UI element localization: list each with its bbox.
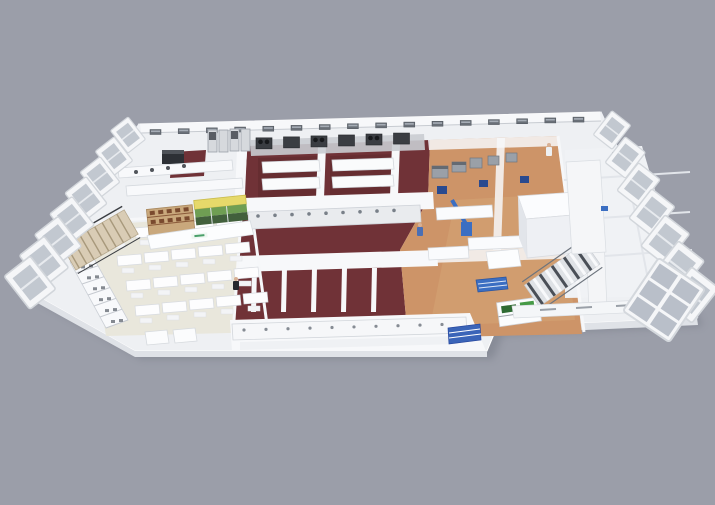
pot: [368, 136, 373, 141]
cafeteria-table: [207, 270, 232, 282]
cafeteria-seat: [149, 265, 161, 270]
facility-render: [0, 0, 715, 505]
window-glint: [546, 119, 555, 121]
stove-unit: [256, 138, 272, 149]
dark-lab-machine-top: [162, 150, 184, 154]
front-table: [173, 328, 197, 343]
counter-equipment-dot: [330, 326, 333, 329]
white-bench: [428, 246, 469, 260]
compartment: [93, 287, 97, 290]
stove-unit: [284, 137, 300, 148]
person-head: [418, 223, 422, 227]
cafeteria-table: [180, 273, 205, 285]
counter-equipment-dot: [242, 328, 245, 331]
cafeteria-table: [171, 248, 196, 260]
cafeteria-table: [198, 245, 223, 257]
window-glint: [264, 127, 273, 129]
cafeteria-table: [135, 304, 160, 316]
facility-render-stage: [0, 0, 715, 505]
pot: [265, 140, 270, 145]
shelf-item: [151, 220, 156, 225]
cafeteria-seat: [167, 315, 179, 320]
counter-equipment-dot: [273, 214, 277, 218]
bench-equipment-dash: [576, 307, 592, 308]
navy-machine: [437, 186, 447, 194]
cafeteria-seat: [158, 290, 170, 295]
stove-unit: [366, 134, 382, 145]
fridge-unit: [219, 130, 228, 152]
person-body: [417, 227, 423, 236]
slab-front-edge: [135, 351, 487, 357]
partition-wall: [311, 268, 317, 312]
shelf-item: [176, 217, 181, 222]
cafeteria-table: [189, 298, 214, 310]
prep-table: [332, 158, 394, 171]
machine-top: [452, 162, 466, 165]
cafeteria-table: [216, 295, 241, 307]
partition-wall: [341, 268, 347, 312]
pot: [375, 136, 380, 141]
person-head: [234, 277, 238, 281]
cafeteria-seat: [248, 306, 260, 311]
fridge-door-dark: [209, 132, 216, 140]
shelf-item: [150, 211, 155, 216]
counter-equipment-dot: [396, 324, 399, 327]
compartment: [101, 286, 105, 289]
blue-pallet: [476, 277, 508, 292]
window-glint: [518, 120, 527, 122]
counter-equipment-dot: [324, 211, 328, 215]
bench-equipment-dash: [540, 309, 556, 310]
machine-top: [432, 166, 448, 169]
counter-equipment-dot: [374, 325, 377, 328]
prep-table: [262, 177, 320, 190]
lab-equipment-dot: [134, 170, 138, 174]
compartment: [113, 308, 117, 311]
stove-unit: [311, 136, 327, 147]
counter-equipment-dot: [358, 210, 362, 214]
compartment: [111, 320, 115, 323]
lab-equipment-dot: [182, 164, 186, 168]
prep-table: [262, 160, 320, 173]
blue-machine: [461, 222, 472, 236]
shelf-item: [175, 208, 180, 213]
gray-machine: [506, 153, 517, 162]
compartment: [107, 297, 111, 300]
counter-equipment-dot: [256, 214, 260, 218]
shelf-item: [184, 216, 189, 221]
cafeteria-seat: [230, 256, 242, 261]
pot: [258, 140, 263, 145]
cafeteria-seat: [194, 312, 206, 317]
white-bench: [566, 160, 606, 254]
counter-equipment-dot: [307, 212, 311, 216]
counter-equipment-dot: [392, 209, 396, 213]
cafeteria-seat: [221, 309, 233, 314]
counter-equipment-dot: [341, 211, 345, 215]
cafeteria-table: [153, 276, 178, 288]
white-bench: [436, 205, 493, 220]
cafeteria-table: [243, 292, 268, 304]
pot: [313, 138, 318, 143]
lab-equipment-dot: [150, 168, 154, 172]
window-glint: [377, 124, 386, 126]
navy-machine: [520, 176, 529, 183]
shelf-item: [159, 219, 164, 224]
counter-equipment-dot: [264, 328, 267, 331]
counter-equipment-dot: [308, 327, 311, 330]
person-head: [547, 143, 551, 147]
counter-equipment-dot: [286, 327, 289, 330]
lab-equipment-dot: [166, 166, 170, 170]
compartment: [87, 276, 91, 279]
cafeteria-table: [144, 251, 169, 263]
cafeteria-seat: [239, 281, 251, 286]
window-glint: [433, 122, 442, 124]
shelf-item: [167, 209, 172, 214]
white-table: [486, 249, 521, 269]
cafeteria-table: [126, 279, 151, 291]
window-glint: [292, 126, 301, 128]
window-glint: [348, 125, 357, 127]
window-glint: [574, 118, 583, 120]
cafeteria-seat: [140, 318, 152, 323]
cafeteria-table: [234, 267, 259, 279]
compartment: [99, 298, 103, 301]
shelf-item: [158, 210, 163, 215]
person-body: [546, 147, 552, 156]
partition-wall: [371, 268, 377, 312]
counter-equipment-dot: [352, 325, 355, 328]
cafeteria-seat: [176, 262, 188, 267]
gray-machine: [470, 158, 482, 168]
window-glint: [461, 121, 470, 123]
gray-machine: [488, 156, 499, 165]
compartment: [105, 309, 109, 312]
counter-equipment-dot: [290, 213, 294, 217]
pot: [320, 138, 325, 143]
stove-unit: [339, 135, 355, 146]
window-glint: [179, 130, 188, 132]
counter-equipment-dot: [375, 209, 379, 213]
cafeteria-table: [162, 301, 187, 313]
cafeteria-seat: [122, 268, 134, 273]
window-glint: [151, 131, 160, 133]
cafeteria-table: [225, 242, 250, 254]
shelf-item: [167, 218, 172, 223]
partition-wall: [281, 268, 287, 312]
counter-equipment-dot: [418, 323, 421, 326]
cafeteria-seat: [131, 293, 143, 298]
window-glint: [489, 121, 498, 123]
navy-machine: [479, 180, 488, 187]
cafeteria-seat: [203, 259, 215, 264]
prep-table: [332, 175, 394, 188]
front-table: [145, 330, 169, 345]
cafeteria-table: [117, 254, 142, 266]
fridge-door-dark: [231, 131, 238, 139]
stove-unit: [394, 133, 410, 144]
window-glint: [405, 123, 414, 125]
fridge-unit: [241, 129, 250, 151]
cafeteria-seat: [212, 284, 224, 289]
person-body: [233, 281, 239, 290]
instrument-blue: [601, 206, 608, 211]
compartment: [95, 275, 99, 278]
counter-equipment-dot: [440, 323, 443, 326]
window-glint: [320, 126, 329, 128]
cafeteria-seat: [185, 287, 197, 292]
shelf-item: [183, 207, 188, 212]
compartment: [119, 319, 123, 322]
